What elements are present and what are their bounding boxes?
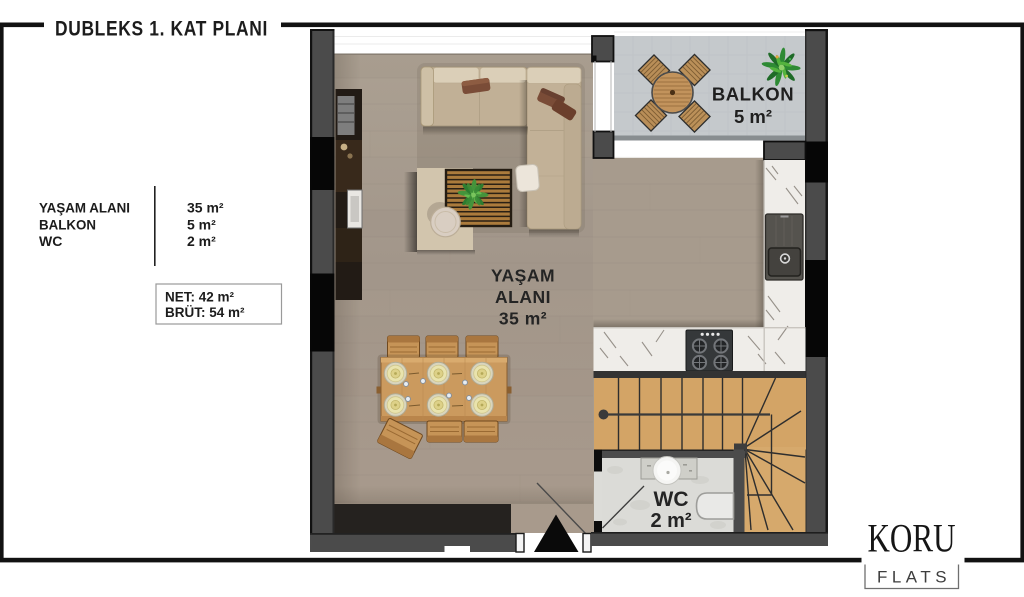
svg-text:5 m²: 5 m² bbox=[734, 106, 772, 127]
svg-text:WC: WC bbox=[654, 488, 689, 511]
svg-text:BRÜT: 54 m²: BRÜT: 54 m² bbox=[165, 305, 245, 320]
svg-text:NET: 42 m²: NET: 42 m² bbox=[165, 290, 235, 305]
svg-text:YAŞAM ALANI: YAŞAM ALANI bbox=[39, 200, 130, 216]
svg-text:35 m²: 35 m² bbox=[187, 200, 224, 216]
svg-text:WC: WC bbox=[39, 233, 62, 249]
svg-text:ALANI: ALANI bbox=[495, 287, 551, 307]
svg-text:2 m²: 2 m² bbox=[187, 233, 216, 249]
svg-text:KORU: KORU bbox=[868, 516, 956, 561]
svg-text:35 m²: 35 m² bbox=[499, 309, 547, 329]
svg-text:BALKON: BALKON bbox=[712, 84, 794, 105]
svg-text:YAŞAM: YAŞAM bbox=[491, 266, 555, 286]
svg-text:FLATS: FLATS bbox=[877, 568, 951, 587]
svg-text:BALKON: BALKON bbox=[39, 217, 96, 233]
svg-text:DUBLEKS 1. KAT PLANI: DUBLEKS 1. KAT PLANI bbox=[55, 17, 268, 41]
svg-text:5 m²: 5 m² bbox=[187, 217, 216, 233]
svg-text:2 m²: 2 m² bbox=[650, 510, 691, 532]
